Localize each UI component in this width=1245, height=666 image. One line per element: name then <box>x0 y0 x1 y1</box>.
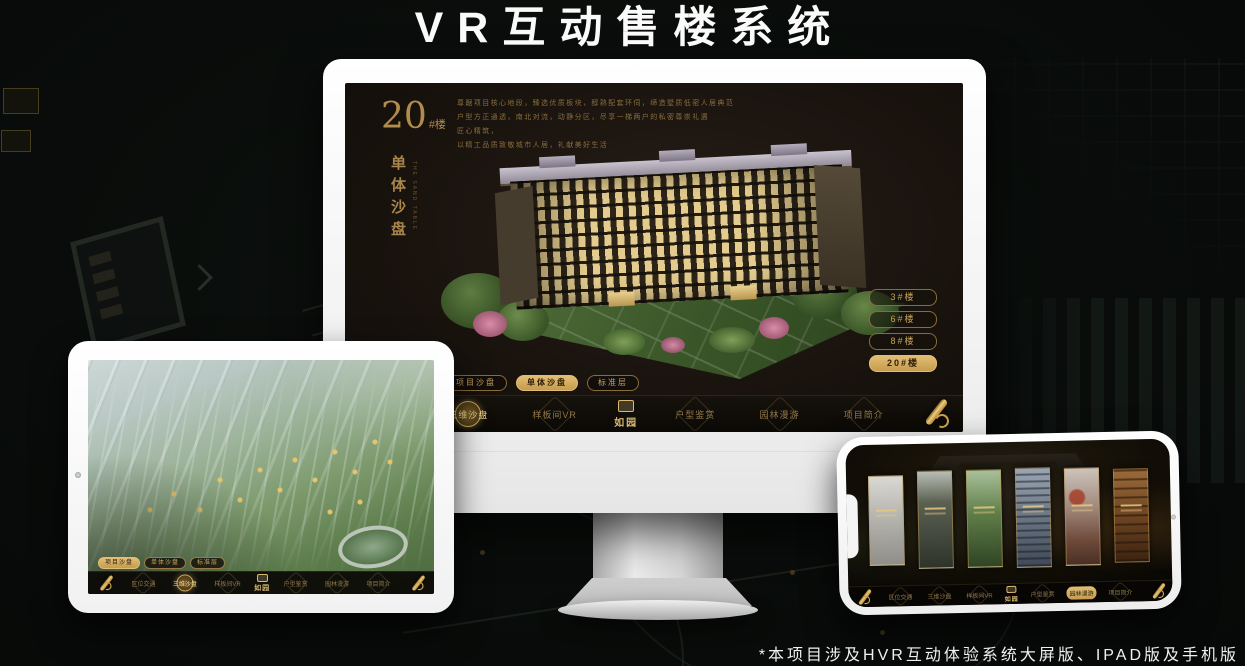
phone-camera-icon <box>1171 515 1176 520</box>
nav-item-project-intro[interactable]: 项目简介 <box>362 577 394 590</box>
scroll-icon[interactable] <box>921 399 951 429</box>
building-model[interactable] <box>455 149 907 385</box>
background-chevron <box>186 264 213 291</box>
nav-item-location-traffic[interactable]: 区位交通 <box>885 589 915 603</box>
tree-icon <box>603 329 645 355</box>
gallery-panel[interactable] <box>917 470 954 569</box>
description-line: 尊踞项目核心地段，臻选优质板块，醇熟配套环伺，缔造墅质低密人居典范 <box>457 97 817 111</box>
scroll-icon[interactable] <box>97 575 113 591</box>
gallery-panel[interactable] <box>1064 467 1101 566</box>
nav-item-project-intro[interactable]: 项目简介 <box>837 404 891 425</box>
model-building <box>510 150 849 309</box>
seal-icon <box>257 574 268 582</box>
gallery-panel[interactable] <box>1113 468 1150 563</box>
tablet-nav-bar: 区位交通 三维沙盘 样板间VR 如园 户型鉴赏 园林漫游 项目简介 <box>88 571 434 594</box>
nav-item-floorplan-gallery[interactable]: 户型鉴赏 <box>280 577 312 590</box>
building-description: 尊踞项目核心地段，臻选优质板块，醇熟配套环伺，缔造墅质低密人居典范 户型方正通透… <box>457 97 817 153</box>
floor-button-3[interactable]: 3#楼 <box>869 289 937 306</box>
view-tabs: 项目沙盘 单体沙盘 标准层 <box>445 375 639 391</box>
background-map-dot <box>480 550 485 555</box>
model-entrance <box>730 285 757 300</box>
model-roof-dormer <box>539 155 576 168</box>
description-line: 户型方正通透，南北对流，动静分区，尽享一梯两户的私密尊崇礼遇 <box>457 111 817 125</box>
building-subtitle: 单体沙盘 <box>387 155 408 275</box>
footnote: *本项目涉及HVR互动体验系统大屏版、IPAD版及手机版 <box>759 641 1239 665</box>
background-plaque <box>1 130 31 152</box>
nav-item-project-intro[interactable]: 项目简介 <box>1105 585 1135 599</box>
tablet-camera-icon <box>75 472 81 478</box>
building-subtitle-en: THE SAND TABLE <box>411 161 417 257</box>
background-city-grid <box>980 58 1245 273</box>
nav-item-garden-tour[interactable]: 园林漫游 <box>321 577 353 590</box>
logo-text: 如园 <box>1005 596 1019 602</box>
ruyuan-logo[interactable]: 如园 <box>254 574 270 593</box>
tab-project-sandtable[interactable]: 项目沙盘 <box>98 557 140 569</box>
model-facade-shading <box>510 164 848 309</box>
logo-text: 如园 <box>254 585 270 592</box>
floor-button-6[interactable]: 6#楼 <box>869 311 937 328</box>
background-sign-text <box>87 245 123 320</box>
nav-item-model-room-vr[interactable]: 样板间VR <box>963 588 996 602</box>
tablet: 项目沙盘 单体沙盘 标准层 区位交通 三维沙盘 样板间VR 如园 户型鉴赏 园林… <box>68 341 454 613</box>
page-title: VR互动售楼系统 <box>0 0 1245 57</box>
tab-standard-floor[interactable]: 标准层 <box>587 375 639 391</box>
nav-item-floorplan-gallery[interactable]: 户型鉴赏 <box>668 404 722 425</box>
nav-item-model-room-vr[interactable]: 样板间VR <box>525 404 584 425</box>
background-map-dot <box>880 630 885 635</box>
nav-item-3d-sandtable[interactable]: 三维沙盘 <box>924 589 954 603</box>
nav-item-garden-tour[interactable]: 园林漫游 <box>753 404 807 425</box>
tab-standard-floor[interactable]: 标准层 <box>190 557 225 569</box>
model-roof-dormer <box>771 143 808 156</box>
building-number-suffix: #楼 <box>429 119 446 131</box>
building-title: 20#楼 <box>381 99 446 135</box>
background-map-dot <box>790 570 795 575</box>
tab-single-sandtable[interactable]: 单体沙盘 <box>144 557 186 569</box>
floor-button-8[interactable]: 8#楼 <box>869 333 937 350</box>
tablet-view-tabs: 项目沙盘 单体沙盘 标准层 <box>98 557 225 569</box>
seal-icon <box>1006 585 1016 592</box>
scene-gallery <box>868 463 1150 573</box>
logo-text: 如园 <box>614 418 638 429</box>
gallery-panel[interactable] <box>966 469 1003 568</box>
phone-notch <box>846 494 858 558</box>
model-wing-right <box>814 165 867 288</box>
nav-item-3d-sandtable[interactable]: 三维沙盘 <box>169 577 201 590</box>
floor-button-20[interactable]: 20#楼 <box>869 355 937 372</box>
background-sign-frame <box>70 216 186 352</box>
floor-selector: 3#楼 6#楼 8#楼 20#楼 <box>869 289 937 372</box>
nav-item-location-traffic[interactable]: 区位交通 <box>127 577 159 590</box>
scroll-icon[interactable] <box>856 589 872 605</box>
ruyuan-logo[interactable]: 如园 <box>1004 585 1018 602</box>
nav-item-garden-tour[interactable]: 园林漫游 <box>1066 586 1096 600</box>
model-entrance <box>608 291 635 306</box>
gallery-panel[interactable] <box>1015 467 1052 568</box>
nav-item-floorplan-gallery[interactable]: 户型鉴赏 <box>1027 586 1057 600</box>
monitor-stand-neck <box>593 512 723 584</box>
flower-shrub-icon <box>473 311 507 337</box>
flower-shrub-icon <box>759 317 789 339</box>
background-plaque <box>3 88 39 114</box>
phone-screen: 区位交通 三维沙盘 样板间VR 如园 户型鉴赏 园林漫游 项目简介 <box>845 439 1172 608</box>
seal-icon <box>618 400 634 412</box>
tree-icon <box>709 327 755 353</box>
model-roof-dormer <box>659 149 696 162</box>
nav-item-model-room-vr[interactable]: 样板间VR <box>210 577 244 590</box>
model-wing-left <box>495 186 539 305</box>
building-number: 20 <box>381 96 427 137</box>
tab-project-sandtable[interactable]: 项目沙盘 <box>445 375 507 391</box>
tab-single-sandtable[interactable]: 单体沙盘 <box>516 375 578 391</box>
ruyuan-logo[interactable]: 如园 <box>614 400 638 429</box>
description-line: 匠心精筑， <box>457 125 817 139</box>
monitor-stand-base <box>558 600 758 620</box>
flower-shrub-icon <box>661 337 685 353</box>
stage: VR互动售楼系统 20#楼 单体沙盘 THE SAND TABLE 尊踞项目核心… <box>0 0 1245 666</box>
gallery-panel[interactable] <box>868 475 905 566</box>
scroll-icon[interactable] <box>1149 583 1165 599</box>
phone: 区位交通 三维沙盘 样板间VR 如园 户型鉴赏 园林漫游 项目简介 <box>836 430 1182 615</box>
scroll-icon[interactable] <box>409 575 425 591</box>
tablet-screen: 项目沙盘 单体沙盘 标准层 区位交通 三维沙盘 样板间VR 如园 户型鉴赏 园林… <box>88 360 434 594</box>
